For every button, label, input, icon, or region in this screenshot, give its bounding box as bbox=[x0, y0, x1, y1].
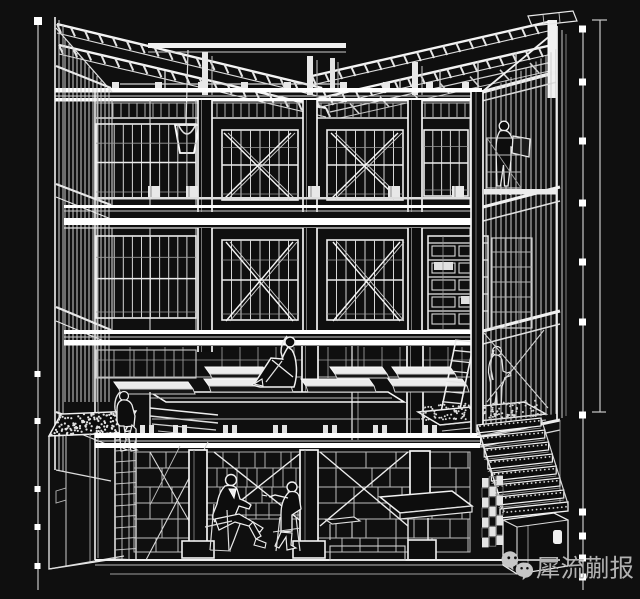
svg-text:犀流蒯报: 犀流蒯报 bbox=[536, 555, 634, 583]
